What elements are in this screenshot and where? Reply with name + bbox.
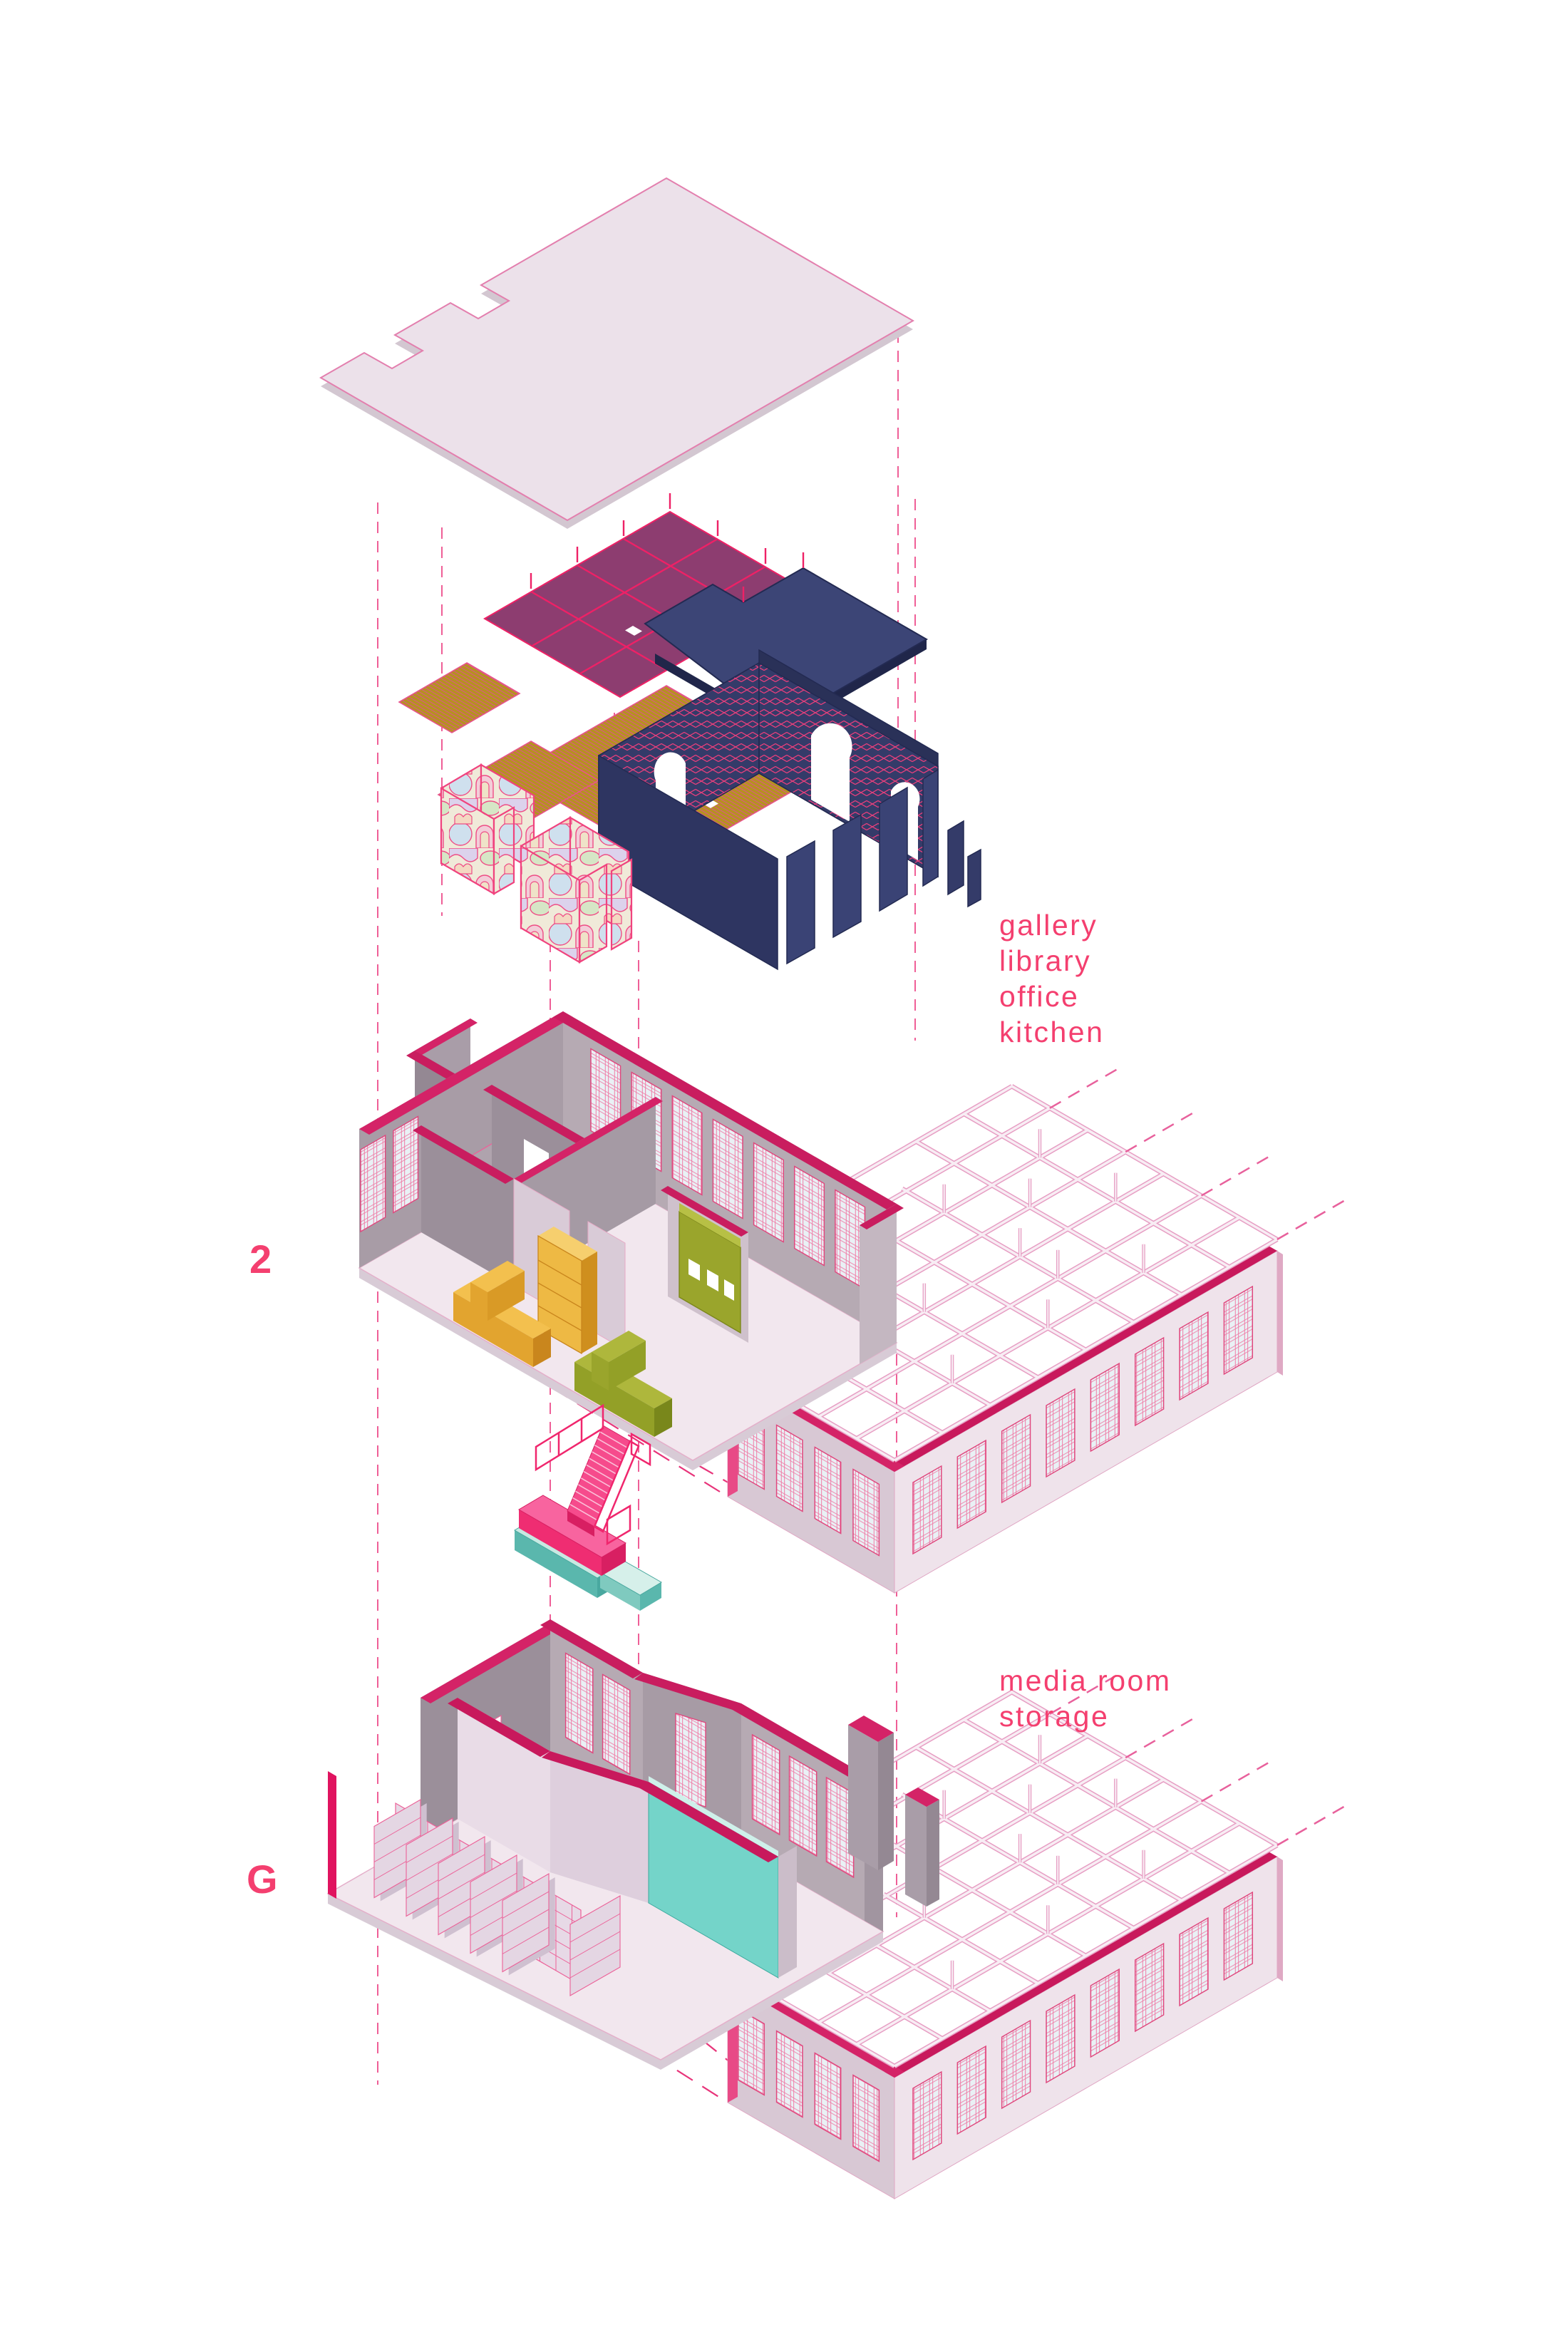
program-label-media-room: media room: [999, 1664, 1171, 1697]
level-g-label: G: [247, 1857, 278, 1902]
program-label-library: library: [999, 944, 1091, 977]
level-2-label: 2: [249, 1237, 272, 1281]
program-label-gallery: gallery: [999, 909, 1098, 942]
program-label-kitchen: kitchen: [999, 1016, 1104, 1048]
program-label-office: office: [999, 980, 1079, 1013]
exploded-axonometric-diagram: 2 G gallery library office kitchen media…: [0, 0, 1568, 2352]
program-label-storage: storage: [999, 1700, 1109, 1733]
